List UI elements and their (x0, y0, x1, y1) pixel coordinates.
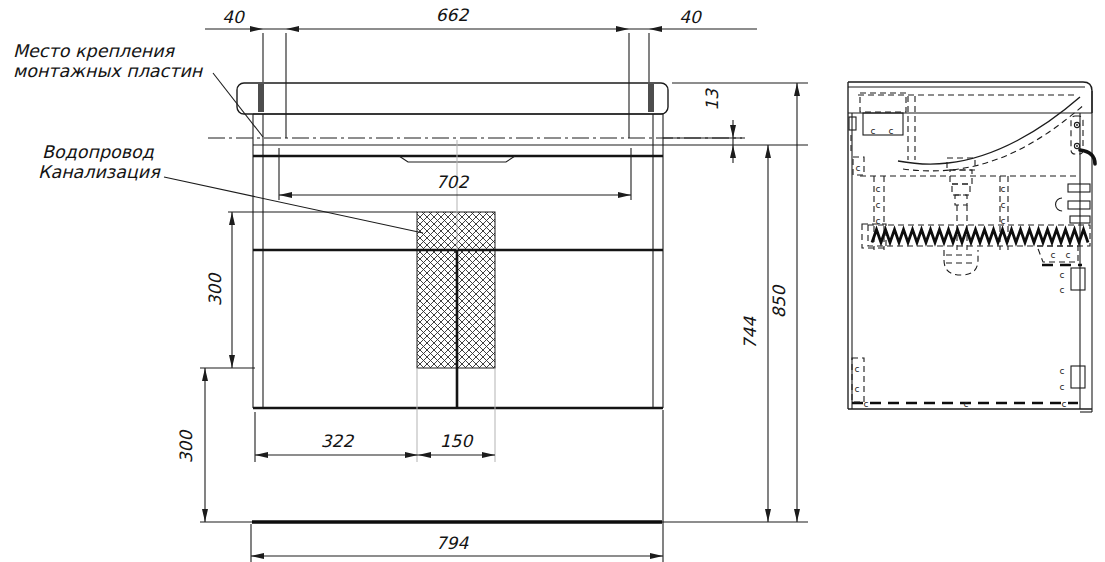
dim-850: 850 (769, 284, 789, 319)
arrowhead (765, 509, 771, 522)
screw-mark: c (1060, 285, 1065, 295)
arrowhead (286, 26, 299, 32)
arrowhead (229, 212, 235, 225)
arrowhead (279, 192, 292, 198)
arrowhead (482, 452, 495, 458)
side-mounting-plate (860, 93, 906, 112)
label-plumbing-line1: Водопровод (42, 142, 155, 162)
screw-mark: c (876, 184, 881, 194)
screw-mark: c (876, 200, 881, 210)
screw-mark: c (1001, 200, 1006, 210)
label-plumbing-line2: Канализация (38, 162, 161, 182)
arrowhead (405, 452, 418, 458)
dim-300-upper: 300 (205, 272, 225, 307)
dim-794: 794 (436, 533, 470, 553)
screw-mark: c (1060, 270, 1065, 280)
screw-mark: c (864, 399, 869, 409)
vanity-technical-drawing: cccccccccccccccccccc Место крепления мон… (0, 0, 1105, 562)
arrowhead (794, 509, 800, 522)
screw-mark: c (1051, 250, 1056, 260)
dim-40-right: 40 (679, 7, 703, 27)
arrowhead (649, 26, 662, 32)
screw-mark: c (1066, 250, 1071, 260)
arrowhead (251, 553, 264, 559)
mounting-plate-left (258, 84, 264, 112)
label-mounting-line2: монтажных пластин (13, 61, 204, 81)
dim-662: 662 (436, 5, 470, 25)
screw-mark: c (1001, 184, 1006, 194)
arrowhead (650, 553, 663, 559)
leader-lines (164, 73, 423, 233)
screw-marks: cccccccccccccccccccc (855, 126, 1071, 409)
screw-mark: c (871, 126, 876, 136)
wall-rail-band (862, 224, 1090, 248)
arrowhead (730, 125, 736, 138)
screw-mark: c (1062, 399, 1067, 409)
cabinet-carcass (253, 114, 663, 408)
annotations: Место крепления монтажных пластин Водопр… (13, 5, 789, 553)
arrowhead (794, 83, 800, 96)
screw-mark: c (1001, 216, 1006, 226)
wall-hook (1080, 150, 1095, 164)
screw-mark: c (856, 163, 861, 173)
side-view: cccccccccccccccccccc (848, 82, 1095, 412)
screw-mark: c (1060, 382, 1065, 392)
dim-40-left: 40 (222, 7, 246, 27)
screw-mark: c (964, 399, 969, 409)
dim-300-lower: 300 (176, 429, 196, 464)
dim-13: 13 (702, 88, 722, 111)
screw-mark: c (889, 126, 894, 136)
dim-150: 150 (440, 431, 475, 451)
basin-bowl-curve (898, 97, 1080, 164)
mounting-plate-right (648, 84, 654, 112)
arrowhead (730, 145, 736, 158)
front-view (200, 83, 808, 522)
dim-744: 744 (740, 316, 760, 350)
screw-mark: c (1060, 366, 1065, 376)
washbasin-top (237, 83, 668, 114)
arrowhead (202, 368, 208, 381)
hinge-cup (1056, 198, 1063, 211)
dim-322: 322 (321, 431, 355, 451)
arrowhead (250, 26, 263, 32)
screw-mark: c (855, 364, 860, 374)
screw-mark: c (855, 384, 860, 394)
label-mounting-line1: Место крепления (13, 41, 176, 61)
dim-702: 702 (436, 172, 470, 192)
arrowhead (618, 192, 631, 198)
arrowhead (418, 452, 431, 458)
arrowhead (202, 509, 208, 522)
arrowhead (616, 26, 629, 32)
drawing-canvas: cccccccccccccccccccc Место крепления мон… (0, 0, 1105, 562)
screw-mark: c (876, 216, 881, 226)
arrowhead (229, 355, 235, 368)
arrowhead (765, 145, 771, 158)
arrowhead (255, 452, 268, 458)
